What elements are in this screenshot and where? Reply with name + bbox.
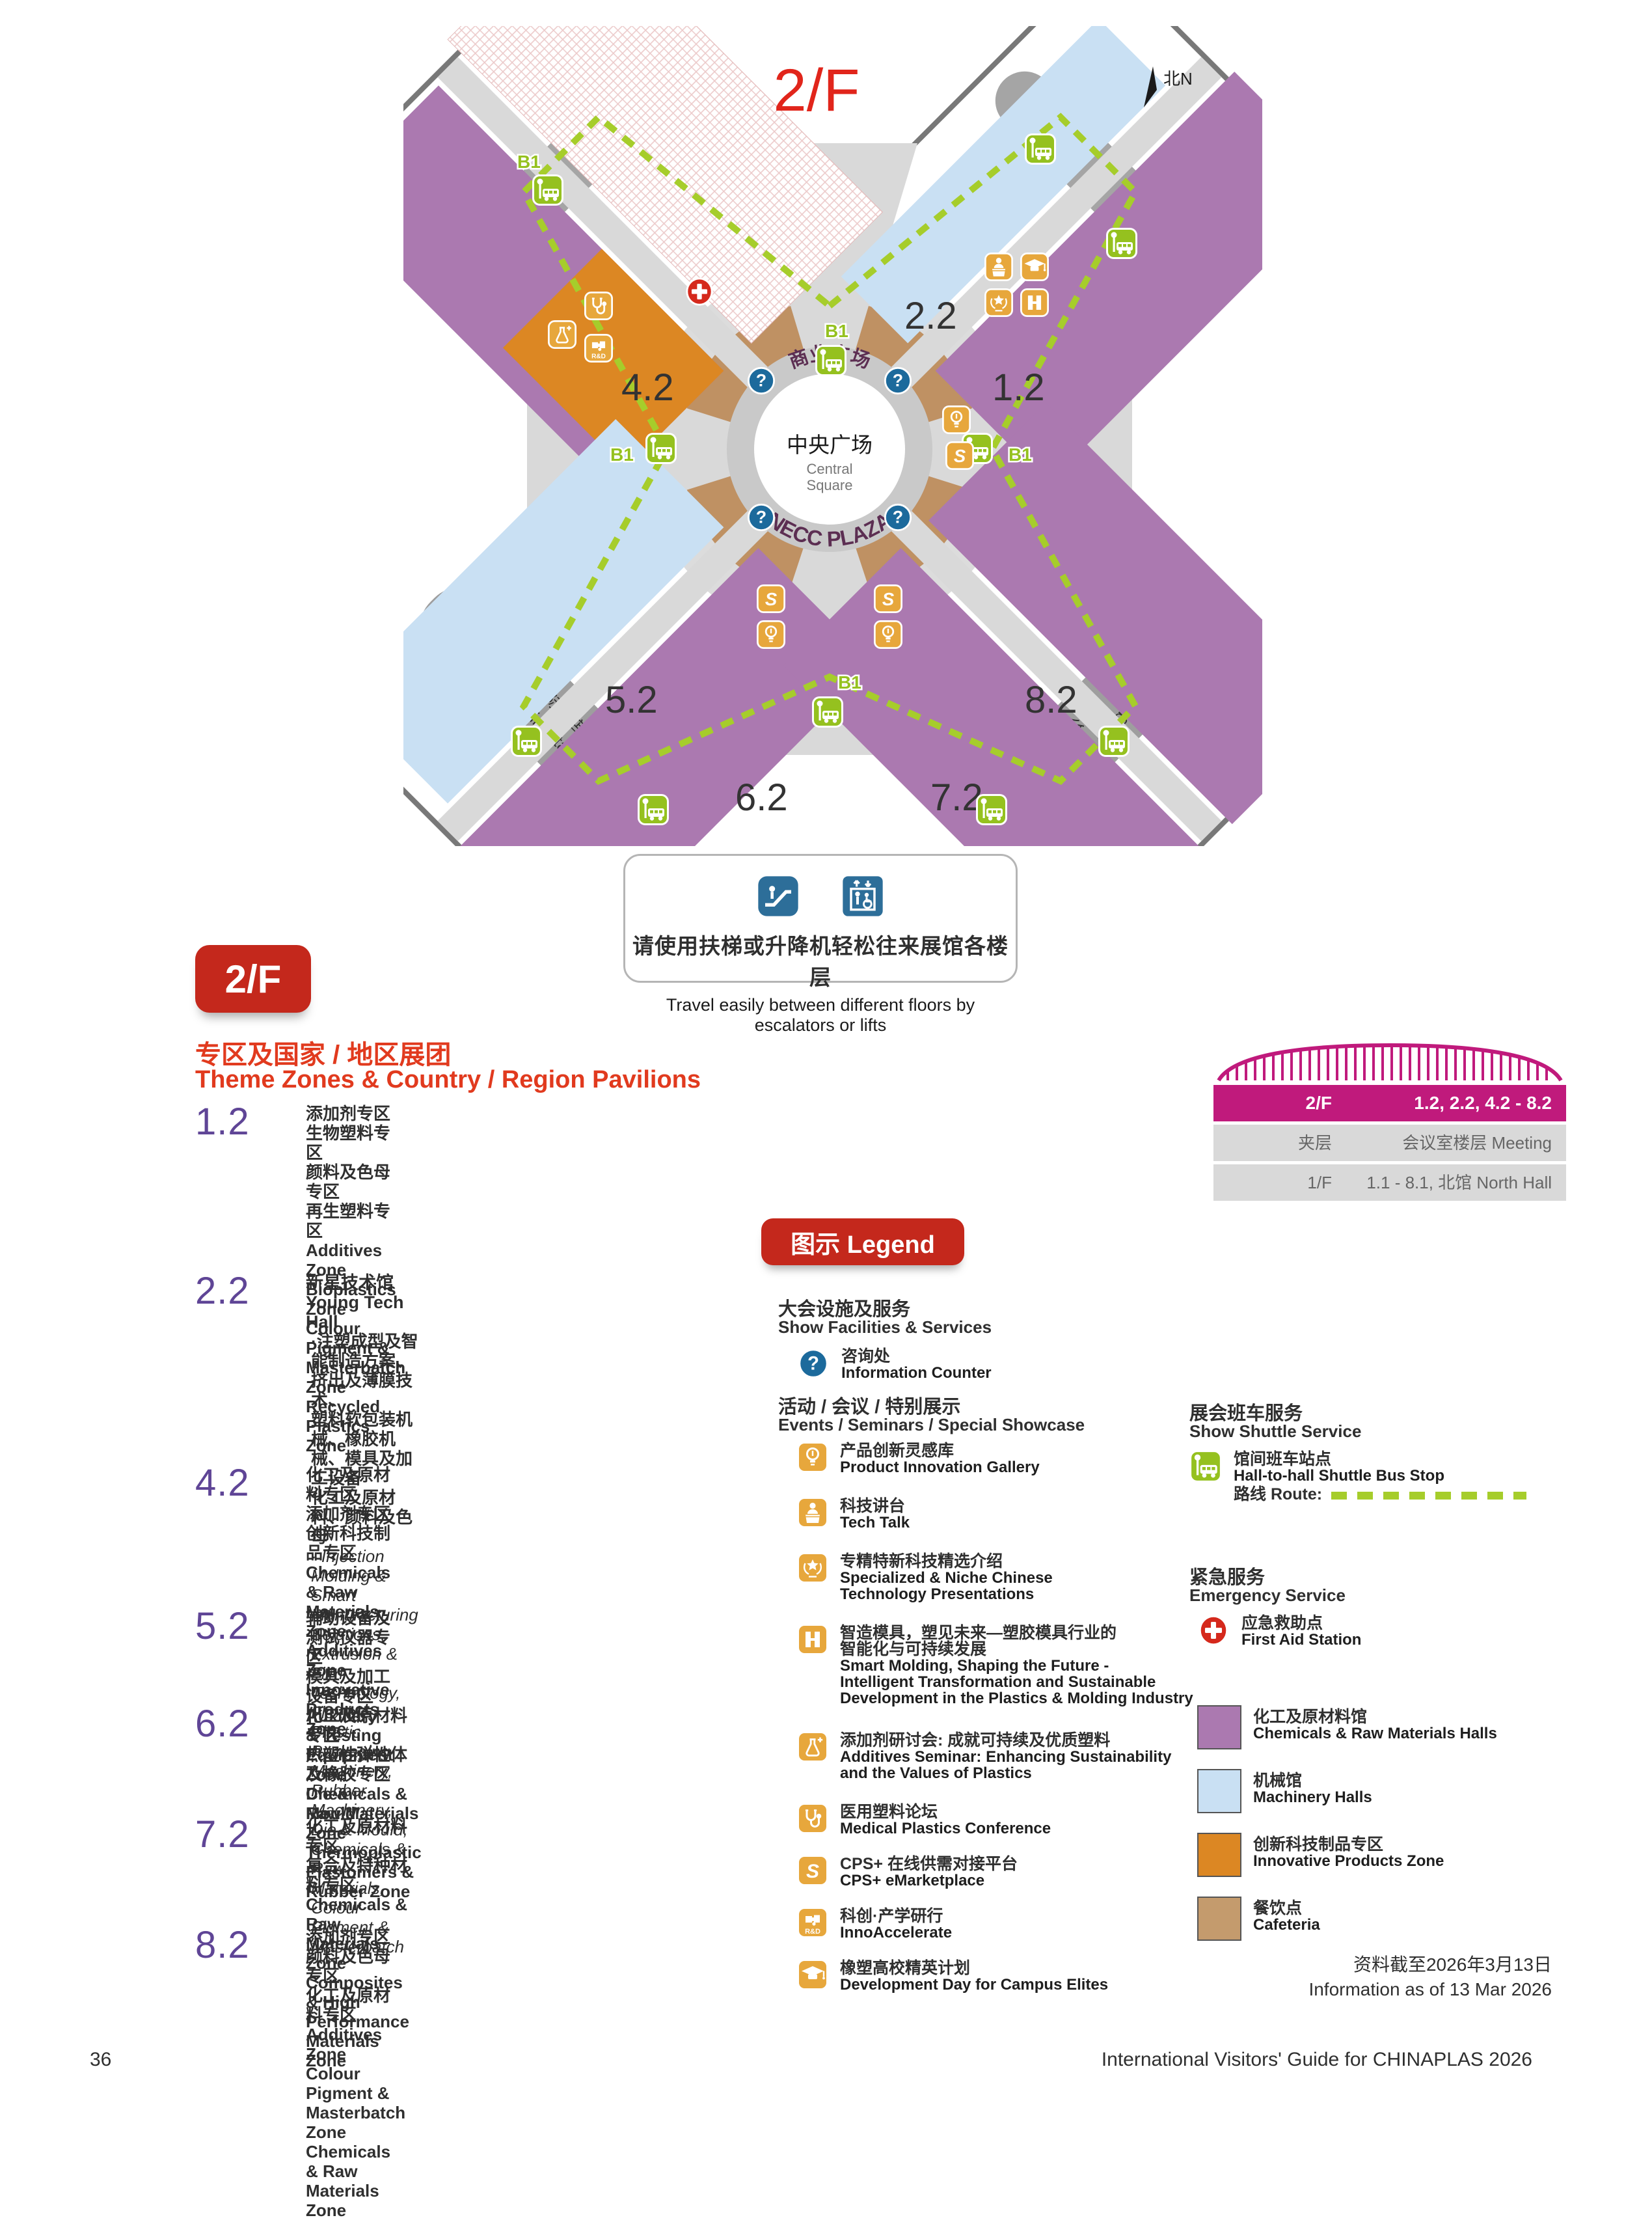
hall-number-2-2: 2.2	[904, 295, 957, 337]
legend-item-cps: CPS+ 在线供需对接平台 CPS+ eMarketplace	[797, 1855, 1018, 1889]
legend-item-machinery-halls: 机械馆 Machinery Halls	[1197, 1769, 1372, 1813]
tech-talk-icon	[797, 1497, 828, 1528]
escalator-icon	[757, 875, 799, 917]
shuttle-stop-icon	[1100, 727, 1129, 756]
medical-plastics-icon	[585, 292, 612, 319]
table-cell: 1.2, 2.2, 4.2 - 8.2	[1347, 1085, 1566, 1121]
campus-elites-icon	[1021, 253, 1048, 280]
info-as-of: 资料截至2026年3月13日Information as of 13 Mar 2…	[901, 1953, 1552, 2002]
medical-plastics-icon	[797, 1803, 828, 1834]
legend-cn: 应急救助点	[1241, 1615, 1361, 1632]
additives-seminar-icon	[797, 1731, 828, 1762]
table-row-1f: 1/F 1.1 - 8.1, 北馆 North Hall	[1213, 1164, 1566, 1201]
legend-cn: 馆间班车站点	[1234, 1451, 1526, 1468]
zone-number: 8.2	[195, 1923, 250, 1967]
legend-item-chem-halls: 化工及原材料馆 Chemicals & Raw Materials Halls	[1197, 1705, 1497, 1749]
info-counter-icon	[748, 368, 774, 393]
central-square-en1: Central	[807, 461, 853, 477]
table-cell: 会议室楼层 Meeting Rooms	[1347, 1125, 1566, 1161]
legend-en: Product Innovation Gallery	[840, 1459, 1040, 1475]
zone-number: 2.2	[195, 1269, 250, 1313]
legend-en: CPS+ eMarketplace	[840, 1872, 1018, 1889]
legend-en: Additives Seminar: Enhancing Sustainabil…	[840, 1749, 1171, 1781]
legend-en: Medical Plastics Conference	[840, 1820, 1051, 1837]
map-title: 2/F	[774, 57, 860, 124]
table-row-2f: 2/F 1.2, 2.2, 4.2 - 8.2	[1213, 1085, 1566, 1121]
legend-en: First Aid Station	[1241, 1632, 1361, 1648]
legend-item-innovative-zone: 创新科技制品专区 Innovative Products Zone	[1197, 1833, 1444, 1877]
legend-en: Specialized & Niche Chinese Technology P…	[840, 1570, 1053, 1602]
legend-item-tech-talk: 科技讲台 Tech Talk	[797, 1497, 910, 1531]
floor-badge: 2/F	[195, 945, 311, 1013]
zone-number: 6.2	[195, 1702, 250, 1746]
legend-cn: 医用塑料论坛	[840, 1804, 1051, 1820]
legend-cn: 化工及原材料馆	[1253, 1709, 1497, 1725]
table-row-mezzanine: 夹层 Mezzanine 会议室楼层 Meeting Rooms	[1213, 1125, 1566, 1161]
legend-cn: 餐饮点	[1253, 1900, 1320, 1917]
shuttle-stop-icon	[1107, 229, 1137, 258]
b1-label-nw: B1	[517, 152, 541, 172]
shuttle-stop-icon	[817, 346, 846, 376]
machinery-halls-swatch	[1197, 1769, 1241, 1813]
innovative-zone-swatch	[1197, 1833, 1241, 1877]
zone-cn: 化工及原材料专区 复合及特种材料专区	[306, 1816, 409, 1895]
zone-title: 新星技术馆 Young Tech Hall	[306, 1273, 418, 1332]
legend-en: Innovative Products Zone	[1253, 1853, 1444, 1869]
hall-number-5-2: 5.2	[605, 679, 658, 721]
table-cell: 1/F	[1213, 1164, 1344, 1201]
emergency-header-en: Emergency Service	[1189, 1585, 1346, 1606]
building-roof-graphic	[1213, 1039, 1566, 1082]
campus-elites-icon	[797, 1959, 828, 1990]
zone-cn: 化工及原材料专区 添加剂专区 创新科技制品专区	[306, 1465, 390, 1563]
legend-item-info-counter: 咨询处 Information Counter	[797, 1347, 992, 1381]
specialized-niche-icon	[797, 1552, 828, 1583]
legend-en: Cafeteria	[1253, 1917, 1320, 1933]
legend-cn: 科技讲台	[840, 1498, 910, 1514]
chemicals-halls-swatch	[1197, 1705, 1241, 1749]
shuttle-header-en: Show Shuttle Service	[1189, 1421, 1361, 1442]
route-dash-sample	[1331, 1492, 1526, 1500]
zone-number: 5.2	[195, 1604, 250, 1648]
legend-item-medical-plastics: 医用塑料论坛 Medical Plastics Conference	[797, 1803, 1051, 1837]
shuttle-stop-icon	[534, 176, 563, 205]
legend-en: Chemicals & Raw Materials Halls	[1253, 1725, 1497, 1742]
zone-number: 7.2	[195, 1813, 250, 1856]
footer-title: International Visitors' Guide for CHINAP…	[911, 2049, 1532, 2071]
hall-number-8-2: 8.2	[1025, 679, 1077, 721]
shuttle-stop-icon	[647, 434, 676, 463]
info-counter-icon	[885, 368, 910, 393]
product-innovation-icon	[874, 621, 901, 648]
legend-cn: 咨询处	[841, 1349, 992, 1365]
central-square-en2: Square	[807, 477, 853, 493]
product-innovation-icon	[943, 406, 969, 433]
product-innovation-icon	[797, 1442, 828, 1473]
first-aid-icon	[687, 279, 712, 305]
smart-molding-icon	[797, 1624, 828, 1655]
hall-number-6-2: 6.2	[735, 776, 788, 819]
legend-item-innoaccelerate: 科创·产学研行 InnoAccelerate	[797, 1907, 952, 1941]
legend-en: InnoAccelerate	[840, 1925, 952, 1941]
section-title-en: Theme Zones & Country / Region Pavilions	[195, 1066, 701, 1094]
legend-badge: 图示 Legend	[761, 1218, 964, 1265]
legend-en: Hall-to-hall Shuttle Bus Stop	[1234, 1468, 1526, 1484]
info-counter-icon	[885, 504, 910, 530]
zone-cn: 添加剂专区 生物塑料专区 颜料及色母专区 再生塑料专区	[306, 1104, 405, 1240]
legend-item-cafeteria: 餐饮点 Cafeteria	[1197, 1897, 1320, 1941]
hall-number-4-2: 4.2	[621, 366, 674, 409]
info-counter-icon	[797, 1347, 830, 1380]
additives-seminar-icon	[548, 321, 575, 348]
legend-cn: 科创·产学研行	[840, 1908, 952, 1925]
table-cell: 2/F	[1213, 1085, 1344, 1121]
legend-item-shuttle-stop: 馆间班车站点 Hall-to-hall Shuttle Bus Stop 路线 …	[1189, 1450, 1526, 1503]
central-square-cn: 中央广场	[787, 433, 873, 457]
legend-cn: 机械馆	[1253, 1773, 1372, 1789]
page-number: 36	[90, 2049, 111, 2071]
innoaccelerate-icon	[585, 335, 612, 361]
cps-icon	[874, 585, 901, 612]
legend-en: Tech Talk	[840, 1514, 910, 1531]
legend-item-specialized-niche: 专精特新科技精选介绍 Specialized & Niche Chinese T…	[797, 1552, 1053, 1602]
legend-cn: 专精特新科技精选介绍	[840, 1554, 1053, 1570]
legend-en: Information Counter	[841, 1365, 992, 1381]
cps-icon	[757, 585, 784, 612]
legend-item-additives-seminar: 添加剂研讨会: 成就可持续及优质塑料 Additives Seminar: En…	[797, 1731, 1171, 1781]
legend-item-product-innovation: 产品创新灵感库 Product Innovation Gallery	[797, 1442, 1040, 1475]
product-innovation-icon	[757, 621, 784, 648]
route-label: 路线 Route:	[1234, 1485, 1322, 1503]
north-label: 北N	[1163, 69, 1193, 89]
events-header-en: Events / Seminars / Special Showcase	[778, 1415, 1085, 1435]
shuttle-stop-icon	[813, 698, 843, 727]
lift-icon	[842, 875, 884, 917]
shuttle-stop-icon	[1026, 135, 1055, 164]
shuttle-stop-icon	[512, 727, 541, 756]
legend-cn: CPS+ 在线供需对接平台	[840, 1856, 1018, 1872]
specialized-niche-icon	[985, 289, 1012, 316]
info-counter-icon	[748, 504, 774, 530]
notice-en: Travel easily between different floors b…	[625, 995, 1016, 1035]
zone-number: 1.2	[195, 1100, 250, 1144]
legend-cn: 添加剂研讨会: 成就可持续及优质塑料	[840, 1733, 1171, 1749]
b1-label-s: B1	[838, 672, 861, 692]
b1-label-w: B1	[610, 445, 634, 465]
shuttle-stop-icon	[639, 795, 668, 825]
legend-item-smart-molding: 智造模具，塑见未来—塑胶模具行业的 智能化与可持续发展 Smart Moldin…	[797, 1624, 1193, 1706]
legend-item-first-aid: 应急救助点 First Aid Station	[1197, 1614, 1361, 1648]
smart-molding-icon	[1021, 289, 1048, 316]
cps-icon	[797, 1855, 828, 1886]
table-cell: 夹层 Mezzanine	[1213, 1125, 1344, 1161]
b1-label-e: B1	[1009, 445, 1032, 465]
notice-cn: 请使用扶梯或升降机轻松往来展馆各楼层	[625, 929, 1016, 991]
shuttle-stop-icon	[977, 795, 1007, 825]
table-cell: 1.1 - 8.1, 北馆 North Hall	[1347, 1164, 1566, 1201]
cps-icon	[946, 442, 973, 469]
zone-cn: 化工及原材料专区 热塑性弹性体及橡胶专区	[306, 1706, 422, 1784]
cafeteria-swatch	[1197, 1897, 1241, 1941]
shuttle-stop-icon	[1189, 1450, 1222, 1483]
facilities-header-en: Show Facilities & Services	[778, 1317, 992, 1337]
zone-en: Additives Zone Colour Pigment & Masterba…	[306, 2025, 405, 2220]
floor-plan-map: 洲际酒店 InterContinental Hotel 办公楼 Office B…	[403, 26, 1262, 846]
floor-stack-table: 2/F 1.2, 2.2, 4.2 - 8.2 夹层 Mezzanine 会议室…	[1213, 1039, 1566, 1201]
zone-cn: 辅助设备及测试仪器专区 模具及加工设备专区	[306, 1608, 393, 1706]
b1-label-n: B1	[825, 321, 848, 341]
floors-notice: 请使用扶梯或升降机轻松往来展馆各楼层 Travel easily between…	[623, 854, 1018, 983]
innoaccelerate-icon	[797, 1907, 828, 1938]
zone-number: 4.2	[195, 1461, 250, 1505]
legend-en: Machinery Halls	[1253, 1789, 1372, 1805]
hall-number-7-2: 7.2	[930, 776, 983, 819]
zone-cn: 添加剂专区 颜料及色母专区 化工及原材料专区	[306, 1927, 405, 2025]
first-aid-icon	[1197, 1614, 1230, 1647]
legend-cn: 智造模具，塑见未来—塑胶模具行业的 智能化与可持续发展	[840, 1625, 1193, 1658]
hall-number-1-2: 1.2	[992, 366, 1045, 409]
legend-cn: 创新科技制品专区	[1253, 1837, 1444, 1853]
tech-talk-icon	[985, 253, 1012, 280]
legend-en: Smart Molding, Shaping the Future - Inte…	[840, 1658, 1193, 1706]
legend-cn: 产品创新灵感库	[840, 1443, 1040, 1459]
